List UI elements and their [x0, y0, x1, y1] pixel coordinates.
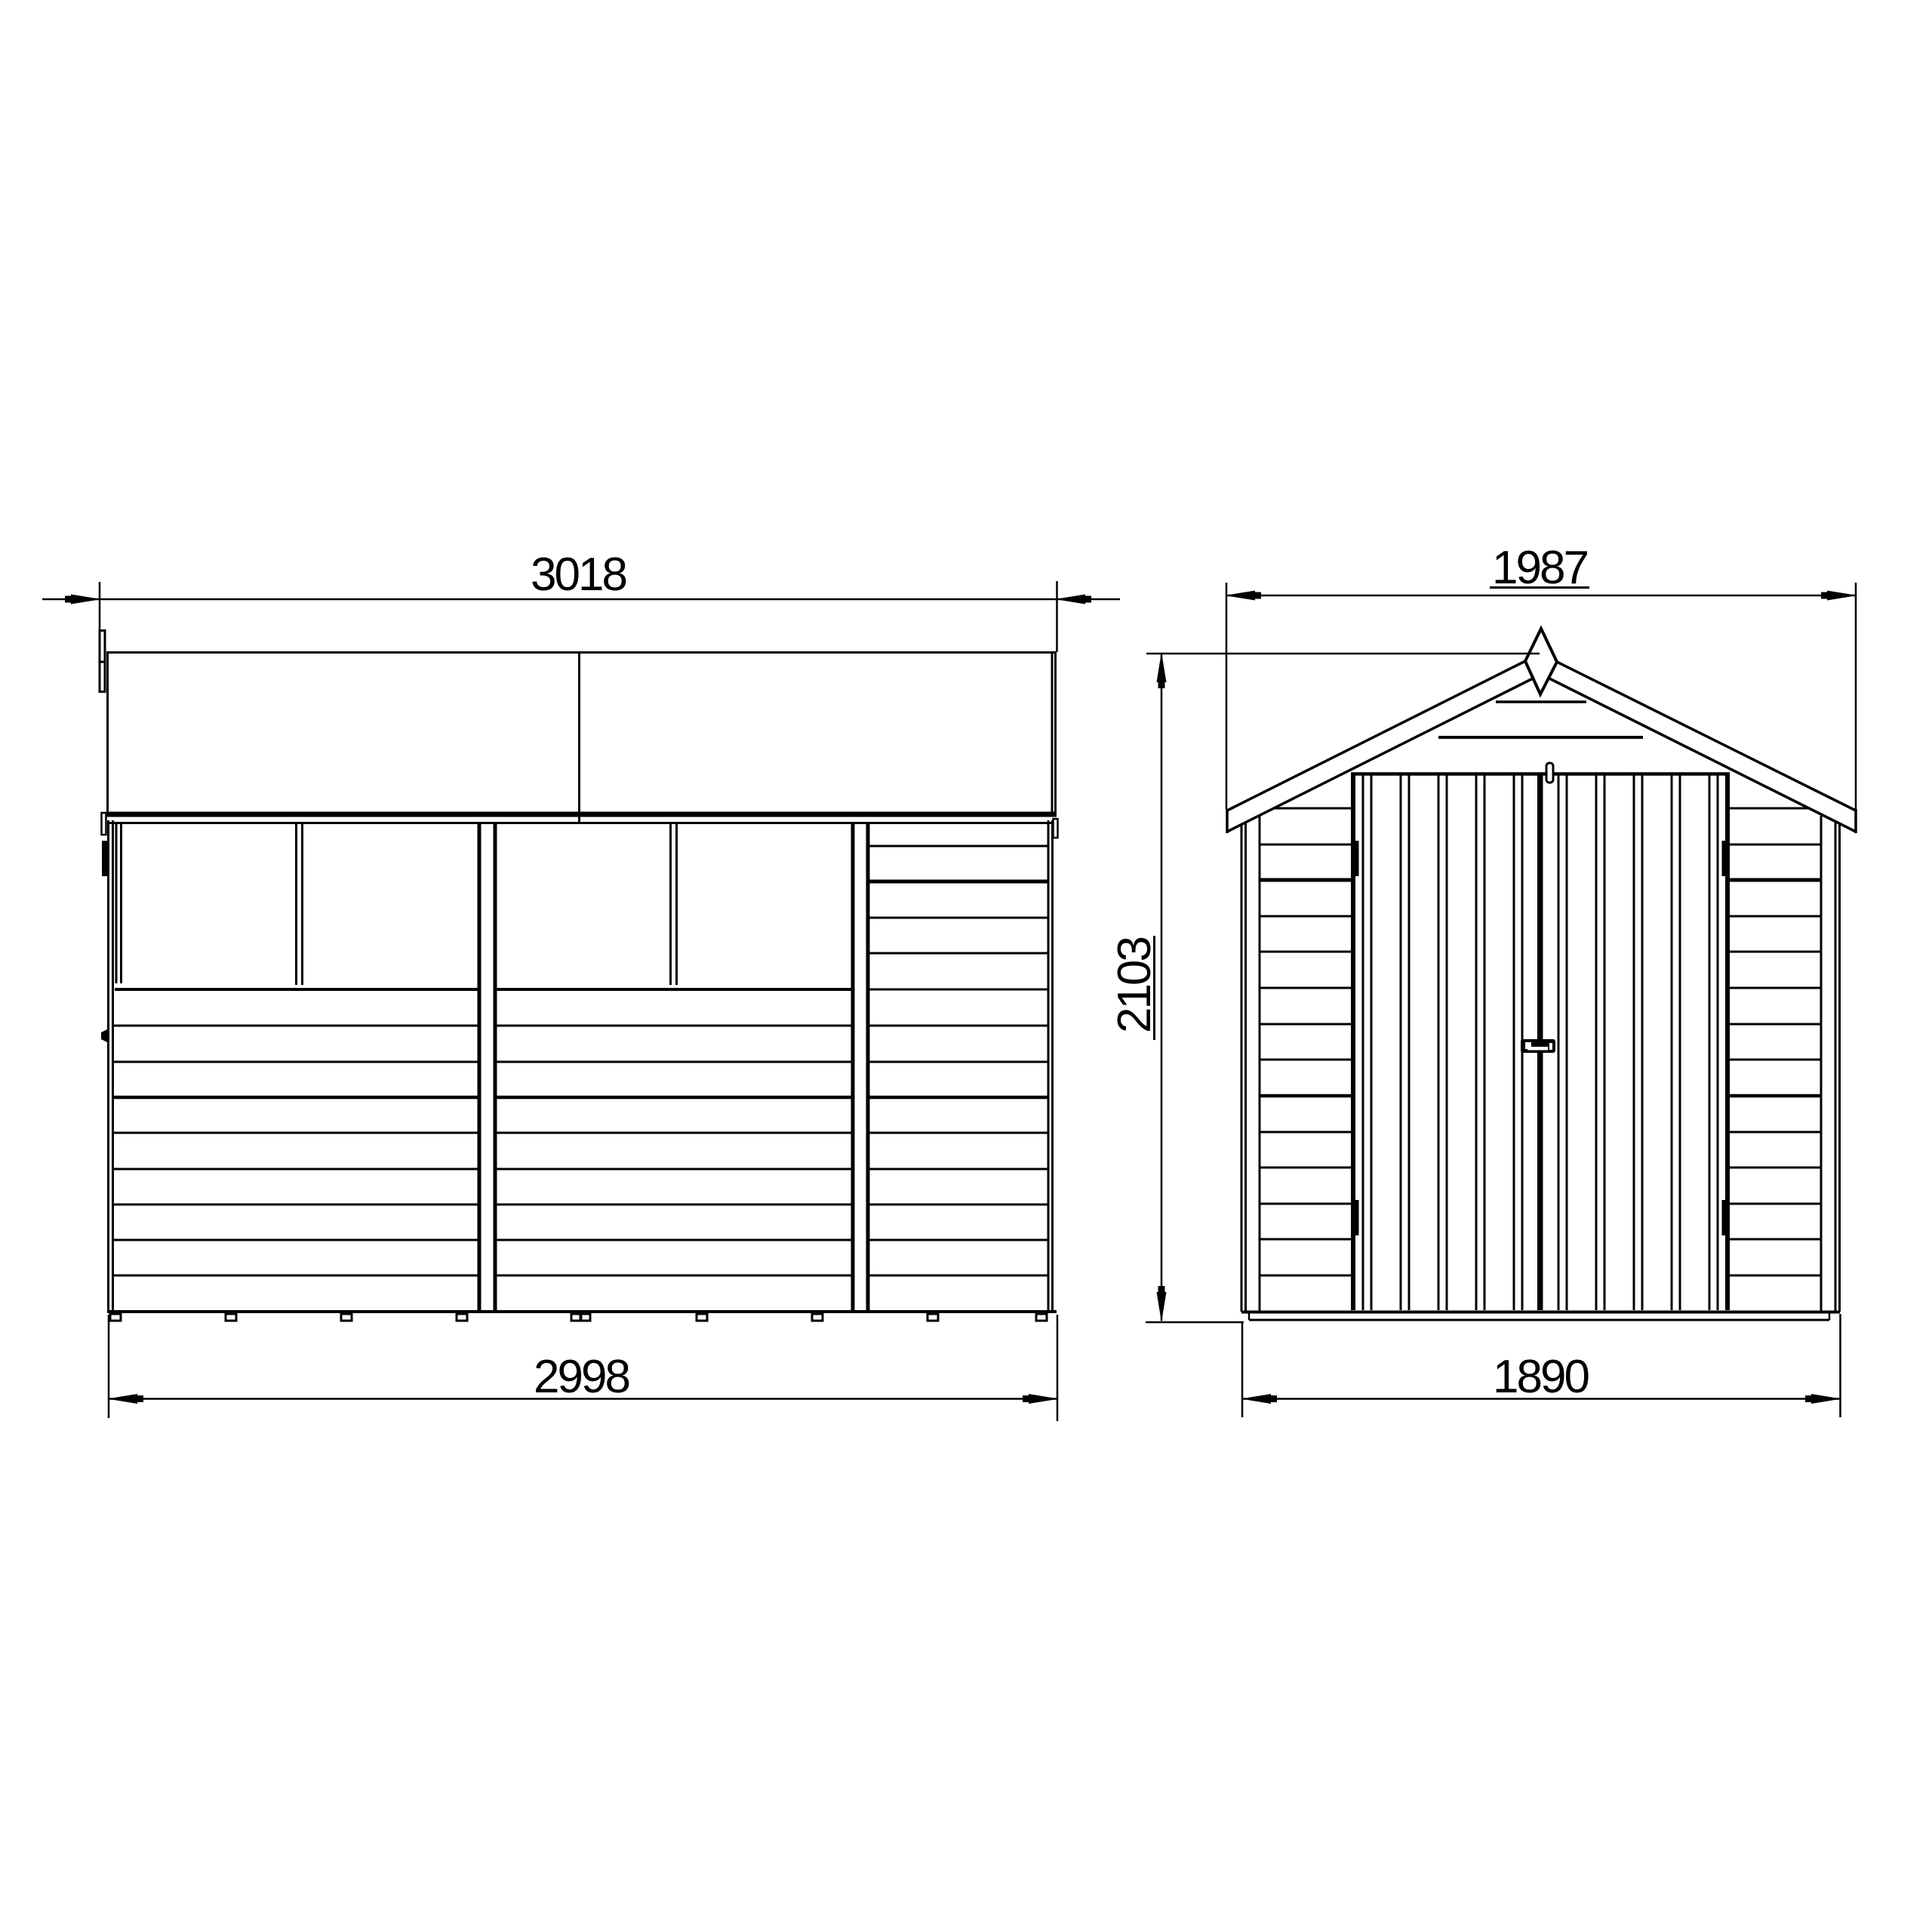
svg-text:1987: 1987	[1492, 542, 1587, 594]
svg-text:2998: 2998	[534, 1351, 629, 1403]
svg-text:3018: 3018	[531, 549, 626, 601]
svg-text:1890: 1890	[1493, 1351, 1589, 1403]
svg-text:2103: 2103	[1109, 938, 1161, 1033]
